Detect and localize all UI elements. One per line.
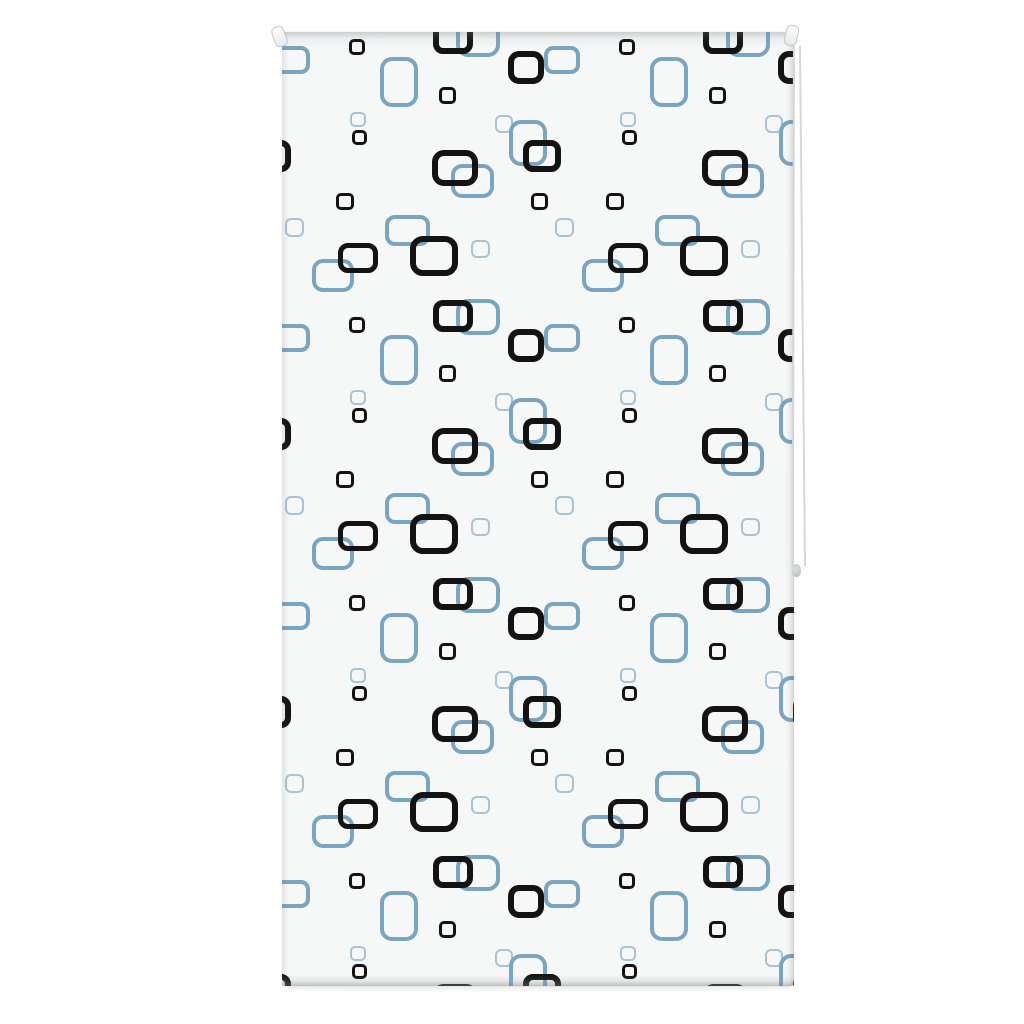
pattern-square-black	[778, 51, 794, 84]
pattern-square-pale	[620, 668, 636, 683]
pattern-square-black	[338, 521, 378, 551]
pattern-square-black	[432, 984, 478, 986]
pattern-square-blue	[380, 613, 418, 663]
pattern-square-blue	[380, 57, 418, 107]
pattern-square-pale	[741, 518, 760, 536]
pattern-square-pale	[285, 218, 304, 237]
pattern-square-black	[703, 578, 743, 610]
pattern-square-black	[622, 964, 637, 979]
pattern-square-pale	[620, 390, 636, 405]
pattern-square-pale	[620, 946, 636, 961]
pattern-square-pale	[471, 240, 490, 258]
pattern-square-blue	[380, 335, 418, 385]
pattern-square-black	[523, 418, 561, 450]
pattern-square-blue	[282, 602, 310, 630]
pattern-square-black	[709, 365, 726, 382]
pattern-square-black	[523, 696, 561, 728]
pattern-square-blue	[282, 46, 310, 74]
pattern-square-black	[531, 193, 548, 210]
pattern-square-black	[709, 87, 726, 104]
pattern-square-blue	[380, 891, 418, 941]
pattern-square-blue	[650, 335, 688, 385]
pattern-square-black	[606, 749, 624, 766]
pattern-square-black	[680, 792, 728, 832]
pattern-square-black	[619, 873, 635, 889]
pattern-layer	[282, 32, 794, 986]
pattern-square-black	[352, 964, 367, 979]
pattern-square-black	[410, 792, 458, 832]
pattern-square-black	[432, 706, 478, 742]
pattern-square-black	[349, 317, 365, 333]
pattern-square-black	[531, 749, 548, 766]
pattern-square-black	[352, 408, 367, 423]
pattern-square-pale	[285, 774, 304, 793]
pattern-square-black	[703, 856, 743, 888]
pattern-square-black	[703, 32, 743, 54]
pattern-square-black	[702, 984, 748, 986]
pattern-square-blue	[779, 676, 794, 722]
pattern-square-black	[523, 140, 561, 172]
pattern-square-blue	[544, 602, 580, 630]
pattern-square-black	[622, 130, 637, 145]
pattern-square-pale	[620, 112, 636, 127]
pattern-square-black	[508, 607, 544, 640]
pattern-square-pale	[471, 796, 490, 814]
pattern-square-black	[606, 193, 624, 210]
pattern-square-black	[433, 32, 473, 54]
pattern-square-black	[508, 51, 544, 84]
pattern-square-pale	[350, 946, 366, 961]
pattern-square-blue	[544, 880, 580, 908]
pattern-square-black	[608, 799, 648, 829]
pattern-square-black	[349, 595, 365, 611]
pattern-square-black	[349, 873, 365, 889]
pull-cord-line-back	[799, 46, 806, 566]
pattern-square-black	[778, 885, 794, 918]
pattern-square-black	[338, 799, 378, 829]
pattern-square-black	[282, 418, 291, 450]
pattern-square-black	[349, 39, 365, 55]
pattern-square-black	[702, 428, 748, 464]
pattern-square-pale	[285, 496, 304, 515]
pattern-square-black	[778, 607, 794, 640]
pattern-square-black	[709, 921, 726, 938]
pattern-square-black	[282, 140, 291, 172]
pattern-square-black	[619, 39, 635, 55]
pattern-square-black	[608, 243, 648, 273]
pattern-square-black	[619, 595, 635, 611]
right-roller-pin	[783, 24, 800, 47]
pattern-square-black	[352, 130, 367, 145]
pattern-square-black	[282, 974, 291, 986]
pattern-square-black	[680, 236, 728, 276]
pattern-square-blue	[779, 954, 794, 986]
pattern-square-black	[793, 696, 794, 728]
pattern-square-black	[410, 514, 458, 554]
pattern-square-black	[508, 329, 544, 362]
pattern-square-black	[606, 471, 624, 488]
pattern-square-black	[432, 150, 478, 186]
pattern-square-pale	[350, 668, 366, 683]
pattern-square-black	[702, 706, 748, 742]
pattern-square-black	[709, 643, 726, 660]
pattern-square-black	[433, 856, 473, 888]
pattern-square-blue	[650, 613, 688, 663]
pattern-square-black	[433, 300, 473, 332]
pattern-square-pale	[555, 774, 574, 793]
pattern-square-black	[432, 428, 478, 464]
pattern-square-black	[410, 236, 458, 276]
pattern-square-pale	[471, 518, 490, 536]
pattern-square-blue	[544, 46, 580, 74]
pattern-square-blue	[544, 324, 580, 352]
pattern-square-black	[619, 317, 635, 333]
pattern-square-pale	[555, 496, 574, 515]
pattern-square-black	[336, 749, 354, 766]
pattern-square-black	[282, 696, 291, 728]
pull-cord-bead	[792, 564, 801, 577]
pattern-square-pale	[741, 796, 760, 814]
pattern-square-pale	[350, 390, 366, 405]
pattern-square-black	[439, 87, 456, 104]
pattern-square-black	[622, 408, 637, 423]
pattern-square-black	[439, 643, 456, 660]
pattern-square-black	[608, 521, 648, 551]
pattern-square-blue	[650, 57, 688, 107]
roller-blind-fabric	[282, 32, 794, 986]
pattern-square-pale	[741, 240, 760, 258]
pattern-square-pale	[350, 112, 366, 127]
pattern-square-black	[439, 365, 456, 382]
pattern-square-black	[702, 150, 748, 186]
pattern-square-black	[352, 686, 367, 701]
pattern-square-black	[523, 974, 561, 986]
pattern-square-black	[622, 686, 637, 701]
pattern-square-blue	[650, 891, 688, 941]
product-stage	[0, 0, 1024, 1024]
pattern-square-black	[680, 514, 728, 554]
pattern-square-pale	[555, 218, 574, 237]
pattern-square-black	[531, 471, 548, 488]
pattern-square-black	[433, 578, 473, 610]
pattern-square-black	[439, 921, 456, 938]
pattern-square-blue	[282, 880, 310, 908]
pattern-square-black	[703, 300, 743, 332]
pattern-square-black	[336, 471, 354, 488]
pattern-square-black	[508, 885, 544, 918]
pattern-square-black	[336, 193, 354, 210]
pattern-square-blue	[282, 324, 310, 352]
pattern-square-black	[338, 243, 378, 273]
